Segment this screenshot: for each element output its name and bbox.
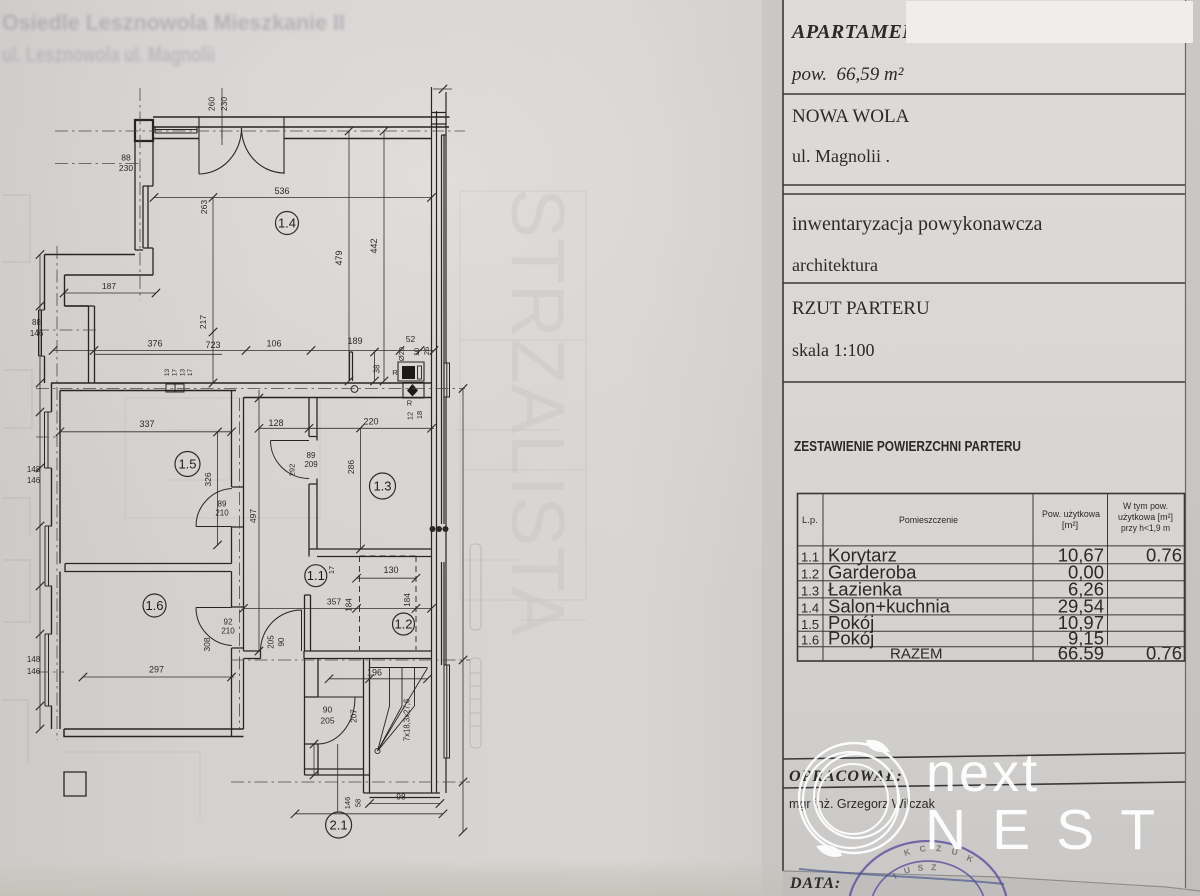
svg-text:użytkowa [m²]: użytkowa [m²]: [1118, 512, 1173, 523]
svg-text:Pow. użytkowa: Pow. użytkowa: [1042, 509, 1101, 520]
svg-text:38: 38: [373, 364, 382, 373]
svg-text:1.4: 1.4: [801, 601, 819, 616]
svg-text:442: 442: [369, 238, 379, 253]
svg-text:Osiedle Lesznowola Mieszkanie: Osiedle Lesznowola Mieszkanie II: [2, 10, 345, 35]
svg-text:337: 337: [139, 419, 154, 429]
svg-text:ul. Magnolii .: ul. Magnolii .: [792, 146, 890, 166]
svg-text:26: 26: [422, 347, 431, 355]
svg-text:ZESTAWIENIE POWIERZCHNI PARTER: ZESTAWIENIE POWIERZCHNI PARTERU: [794, 439, 1021, 455]
svg-text:RZUT PARTERU: RZUT PARTERU: [792, 298, 930, 319]
svg-text:184: 184: [345, 598, 354, 612]
svg-text:1.4: 1.4: [278, 216, 296, 231]
svg-text:148: 148: [27, 655, 41, 664]
svg-text:R: R: [392, 368, 398, 377]
svg-text:1.5: 1.5: [801, 617, 819, 632]
svg-text:1.3: 1.3: [373, 479, 391, 494]
svg-text:2.1: 2.1: [330, 818, 348, 833]
svg-text:NEST: NEST: [925, 798, 1181, 862]
svg-text:Ø20: Ø20: [397, 347, 406, 361]
svg-text:497: 497: [248, 509, 258, 523]
svg-text:przy h<1,9 m: przy h<1,9 m: [1121, 523, 1170, 534]
svg-text:NOWA WOLA: NOWA WOLA: [792, 106, 910, 127]
svg-text:architektura: architektura: [792, 255, 878, 275]
svg-text:207: 207: [350, 709, 359, 723]
svg-text:66.59: 66.59: [1058, 643, 1104, 664]
svg-text:146: 146: [30, 329, 44, 338]
svg-text:297: 297: [149, 665, 164, 675]
svg-text:90: 90: [323, 705, 333, 715]
svg-text:1.3: 1.3: [801, 584, 819, 599]
svg-text:1.2: 1.2: [801, 567, 819, 582]
svg-text:146: 146: [343, 797, 352, 810]
svg-text:92: 92: [224, 618, 233, 627]
svg-text:13: 13: [164, 369, 171, 377]
svg-text:217: 217: [198, 315, 208, 329]
svg-text:230: 230: [219, 97, 229, 111]
svg-text:376: 376: [147, 339, 162, 349]
svg-text:R: R: [407, 399, 413, 408]
svg-text:Pokój: Pokój: [828, 628, 874, 649]
svg-text:13: 13: [180, 369, 187, 377]
svg-text:W tym pow.: W tym pow.: [1123, 501, 1168, 512]
svg-text:1.6: 1.6: [801, 633, 819, 648]
svg-text:128: 128: [268, 418, 283, 428]
svg-text:17: 17: [172, 369, 179, 377]
svg-text:88: 88: [121, 153, 131, 163]
svg-text:130: 130: [383, 565, 398, 575]
svg-text:146: 146: [27, 667, 41, 676]
svg-text:88: 88: [32, 318, 41, 327]
svg-text:536: 536: [274, 186, 289, 196]
svg-text:mgr inż. Grzegorz Wilczak: mgr inż. Grzegorz Wilczak: [789, 797, 936, 811]
svg-text:479: 479: [334, 250, 344, 265]
svg-text:Pomieszczenie: Pomieszczenie: [899, 515, 958, 526]
svg-text:196: 196: [367, 668, 382, 678]
svg-text:106: 106: [266, 339, 281, 349]
svg-text:7x18,3x27,6: 7x18,3x27,6: [403, 699, 412, 741]
svg-text:inwentaryzacja powykonawcza: inwentaryzacja powykonawcza: [792, 213, 1043, 235]
svg-text:skala 1:100: skala 1:100: [792, 340, 875, 360]
svg-text:292: 292: [288, 464, 297, 477]
svg-text:146: 146: [27, 476, 41, 485]
svg-text:1.1: 1.1: [307, 568, 325, 583]
svg-text:205: 205: [320, 716, 334, 726]
svg-text:90: 90: [277, 637, 286, 646]
svg-text:[m²]: [m²]: [1062, 520, 1078, 531]
svg-text:18: 18: [415, 411, 424, 419]
svg-text:12: 12: [406, 412, 415, 420]
svg-text:0.76: 0.76: [1146, 545, 1182, 566]
svg-text:260: 260: [207, 97, 217, 111]
svg-text:10: 10: [412, 348, 421, 356]
svg-text:230: 230: [119, 163, 133, 173]
svg-text:723: 723: [205, 340, 220, 350]
svg-text:1.1: 1.1: [801, 550, 819, 565]
svg-text:220: 220: [363, 417, 378, 427]
svg-text:0.76: 0.76: [1146, 643, 1182, 664]
svg-text:RAZEM: RAZEM: [890, 646, 943, 663]
svg-text:89: 89: [307, 451, 316, 460]
svg-text:1.2: 1.2: [394, 617, 412, 632]
svg-text:58: 58: [354, 799, 363, 807]
svg-text:ul. Lesznowola ul. Magnolii: ul. Lesznowola ul. Magnolii: [2, 42, 215, 67]
svg-text:1.5: 1.5: [178, 457, 196, 472]
svg-text:205: 205: [267, 635, 276, 649]
svg-text:next: next: [926, 743, 1040, 803]
svg-text:89: 89: [218, 500, 227, 509]
svg-text:189: 189: [347, 336, 362, 346]
svg-text:Z: Z: [931, 862, 937, 872]
svg-text:210: 210: [215, 509, 229, 518]
svg-text:52: 52: [406, 334, 416, 344]
svg-text:184: 184: [403, 593, 412, 607]
svg-text:210: 210: [221, 627, 235, 636]
svg-text:263: 263: [199, 200, 209, 214]
svg-text:17: 17: [327, 566, 336, 574]
svg-text:17: 17: [187, 369, 194, 377]
svg-text:308: 308: [202, 637, 212, 651]
svg-text:357: 357: [327, 597, 341, 607]
svg-text:187: 187: [102, 281, 116, 291]
svg-text:326: 326: [203, 472, 213, 486]
svg-text:pow. 66,59 m²: pow. 66,59 m²: [790, 64, 904, 85]
svg-text:98: 98: [396, 792, 406, 802]
svg-text:STRZALISTA: STRZALISTA: [496, 188, 580, 637]
svg-text:L.p.: L.p.: [802, 515, 818, 526]
svg-text:1.6: 1.6: [145, 598, 163, 613]
svg-text:148: 148: [27, 465, 41, 474]
svg-text:286: 286: [346, 460, 356, 474]
svg-text:209: 209: [304, 460, 318, 469]
svg-text:DATA:: DATA:: [789, 875, 841, 892]
